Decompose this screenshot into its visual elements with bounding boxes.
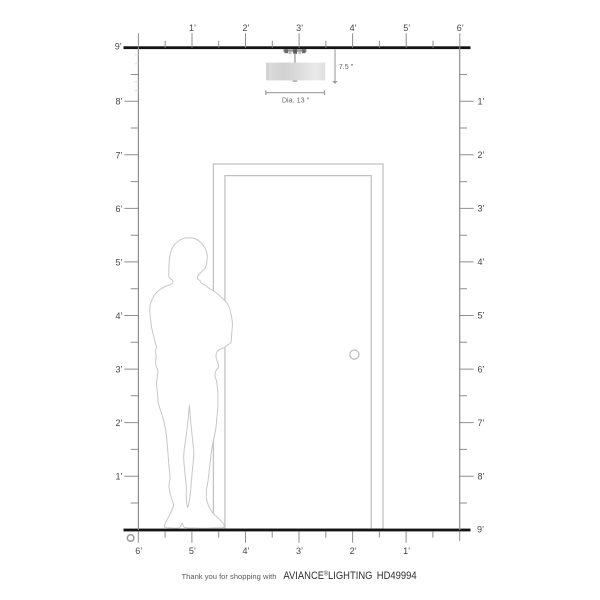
svg-text:8’: 8’ bbox=[478, 471, 485, 481]
svg-text:3’: 3’ bbox=[296, 23, 303, 33]
svg-text:8’: 8’ bbox=[115, 97, 122, 107]
svg-text:9’: 9’ bbox=[115, 41, 122, 51]
svg-text:1’: 1’ bbox=[478, 97, 485, 107]
svg-text:7.5 ″: 7.5 ″ bbox=[339, 62, 354, 71]
svg-text:2’: 2’ bbox=[115, 418, 122, 428]
svg-text:9’: 9’ bbox=[477, 525, 484, 535]
svg-text:AVIANCE®LIGHTINGHD49994: AVIANCE®LIGHTINGHD49994 bbox=[283, 570, 417, 582]
svg-text:5’: 5’ bbox=[478, 311, 485, 321]
svg-text:6’: 6’ bbox=[115, 204, 122, 214]
svg-text:4’: 4’ bbox=[478, 257, 485, 267]
svg-text:2’: 2’ bbox=[478, 150, 485, 160]
svg-text:6’: 6’ bbox=[135, 546, 142, 556]
svg-text:5’: 5’ bbox=[403, 23, 410, 33]
svg-text:2’: 2’ bbox=[350, 546, 357, 556]
svg-text:6’: 6’ bbox=[478, 364, 485, 374]
svg-text:6’: 6’ bbox=[457, 23, 464, 33]
svg-text:1’: 1’ bbox=[189, 23, 196, 33]
svg-text:4’: 4’ bbox=[115, 311, 122, 321]
svg-text:3’: 3’ bbox=[115, 365, 122, 375]
svg-text:3’: 3’ bbox=[478, 204, 485, 214]
svg-text:7’: 7’ bbox=[478, 418, 485, 428]
svg-text:1’: 1’ bbox=[403, 546, 410, 556]
svg-text:2’: 2’ bbox=[242, 23, 249, 33]
svg-text:Thank you for shopping with: Thank you for shopping with bbox=[182, 572, 277, 581]
svg-text:4’: 4’ bbox=[350, 23, 357, 33]
svg-text:Dia. 13 ″: Dia. 13 ″ bbox=[282, 95, 310, 104]
svg-text:4’: 4’ bbox=[242, 546, 249, 556]
svg-text:3’: 3’ bbox=[296, 546, 303, 556]
svg-text:5’: 5’ bbox=[115, 257, 122, 267]
svg-text:1’: 1’ bbox=[115, 472, 122, 482]
svg-text:7’: 7’ bbox=[115, 150, 122, 160]
svg-text:5’: 5’ bbox=[189, 546, 196, 556]
